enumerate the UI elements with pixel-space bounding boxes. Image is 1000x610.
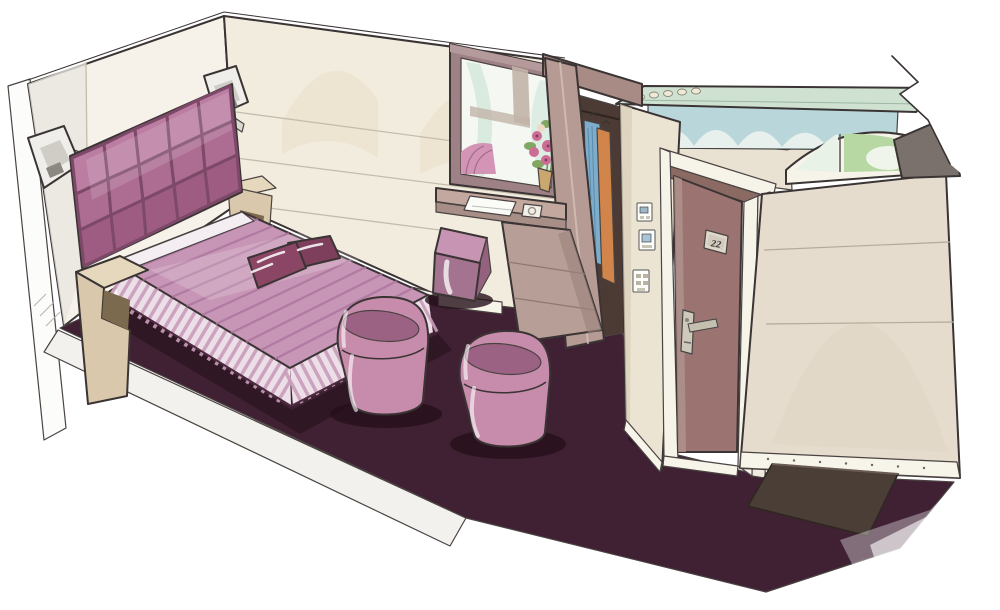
corridor-wall [740,174,960,478]
switch-panel-3 [633,270,649,292]
switch-panel-2 [639,230,655,250]
room-illustration: 22 [0,0,1000,610]
armchair-left [330,297,442,428]
flower-vase [538,168,552,192]
handle-pivot [685,318,689,322]
room-number: 22 [709,238,722,251]
desk-dish [522,204,542,218]
hotel-room-sketch: 22 [0,0,1000,610]
switch-panel-1 [637,203,652,221]
card-slot [684,342,691,343]
